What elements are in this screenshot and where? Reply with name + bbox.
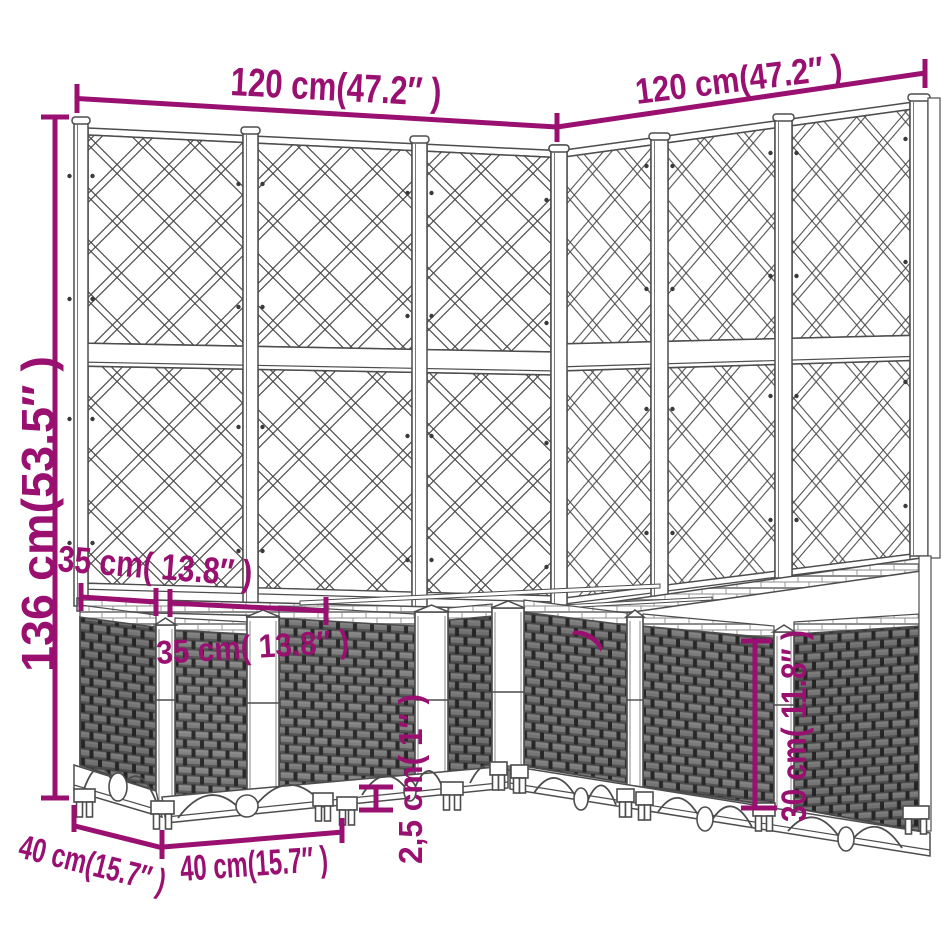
- svg-text:2,5 cm( 1″ ): 2,5 cm( 1″ ): [392, 694, 429, 864]
- svg-text:30 cm( 11.8″ ): 30 cm( 11.8″ ): [775, 630, 814, 822]
- svg-text:136 cm(53.5″ ): 136 cm(53.5″ ): [12, 356, 64, 672]
